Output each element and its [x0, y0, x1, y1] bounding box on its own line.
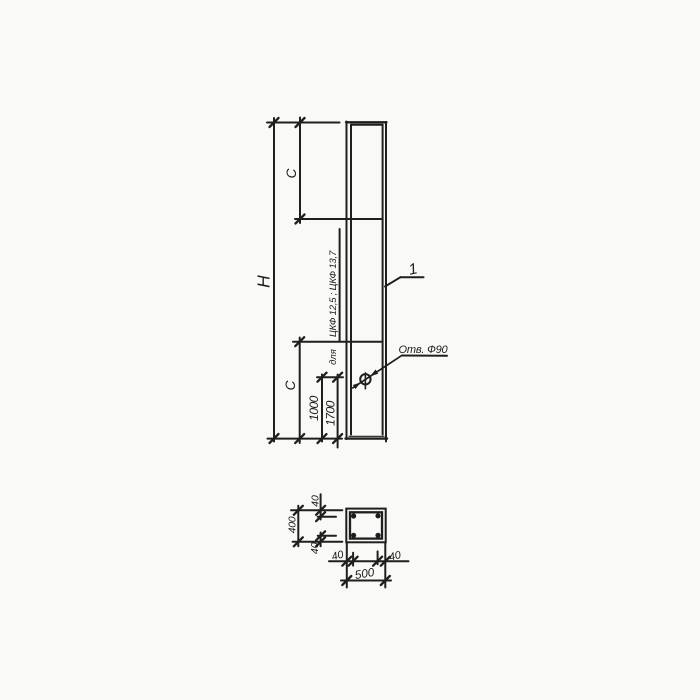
svg-text:H: H — [254, 275, 274, 288]
svg-text:для: для — [328, 349, 339, 365]
svg-text:40: 40 — [309, 542, 321, 554]
svg-text:C: C — [284, 168, 299, 178]
svg-text:1000: 1000 — [307, 395, 321, 421]
svg-text:Отв. Ф90: Отв. Ф90 — [399, 344, 449, 356]
svg-text:400: 400 — [287, 516, 299, 533]
svg-text:C: C — [283, 380, 298, 390]
svg-text:1700: 1700 — [324, 400, 338, 426]
svg-text:40: 40 — [310, 495, 322, 507]
svg-text:ЦКФ 12,5 ; ЦКФ 13,7: ЦКФ 12,5 ; ЦКФ 13,7 — [328, 250, 339, 337]
